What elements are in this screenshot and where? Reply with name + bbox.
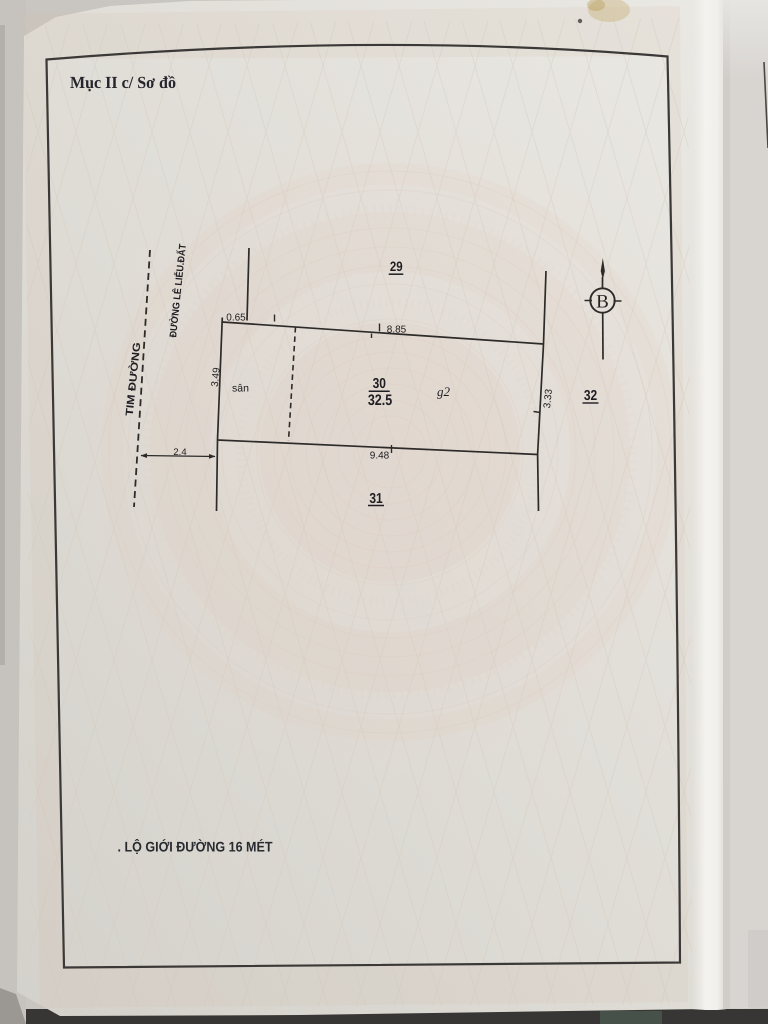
svg-text:29: 29 bbox=[390, 261, 403, 275]
svg-text:Mục II c/ Sơ đồ: Mục II c/ Sơ đồ bbox=[70, 73, 176, 92]
svg-text:sân: sân bbox=[232, 383, 249, 395]
svg-text:B: B bbox=[596, 292, 609, 313]
svg-text:32: 32 bbox=[584, 387, 598, 404]
svg-text:2.4: 2.4 bbox=[173, 447, 186, 458]
svg-text:32.5: 32.5 bbox=[368, 392, 392, 409]
svg-text:g2: g2 bbox=[437, 384, 451, 399]
svg-text:0.65: 0.65 bbox=[226, 313, 246, 324]
svg-text:31: 31 bbox=[369, 490, 383, 507]
svg-text:8.85: 8.85 bbox=[387, 325, 407, 336]
svg-text:3.33: 3.33 bbox=[542, 388, 555, 409]
svg-text:9.48: 9.48 bbox=[370, 451, 390, 462]
svg-text:. LỘ GIỚI ĐƯỜNG 16 MÉT: . LỘ GIỚI ĐƯỜNG 16 MÉT bbox=[118, 839, 273, 855]
svg-text:3.49: 3.49 bbox=[210, 367, 223, 388]
svg-text:30: 30 bbox=[373, 375, 387, 392]
